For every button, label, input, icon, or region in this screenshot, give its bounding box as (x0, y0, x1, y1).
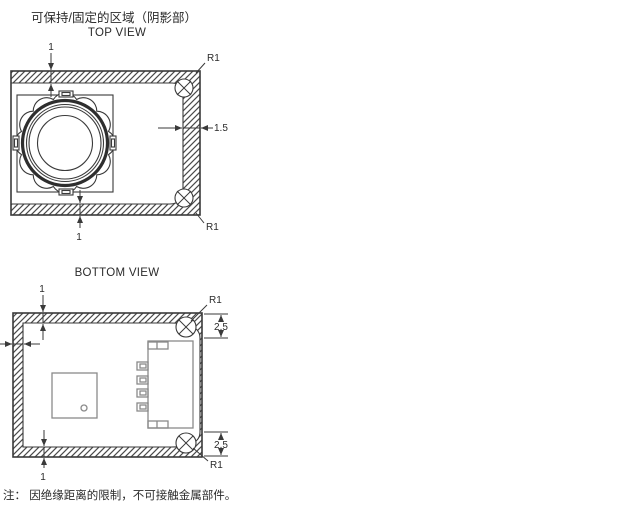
svg-text:1.5: 1.5 (214, 123, 228, 134)
bottom-view-dim-corner-top: 2.5 (204, 314, 228, 338)
lens-module (13, 91, 116, 195)
connector-pin-1 (137, 362, 148, 370)
bottom-view-corner-hole-bottom (176, 433, 196, 453)
top-view: 可保持/固定的区域（阴影部） TOP VIEW (11, 10, 228, 243)
connector-pin-4 (137, 403, 148, 411)
top-view-corner-hole-top (175, 79, 193, 97)
svg-text:1: 1 (39, 284, 45, 295)
svg-text:R1: R1 (207, 53, 220, 64)
ic-chip (52, 373, 97, 418)
svg-text:R1: R1 (209, 295, 222, 306)
bottom-view-dim-corner-bottom: 2.5 (204, 432, 228, 456)
svg-text:1: 1 (48, 42, 54, 53)
bottom-view-title: BOTTOM VIEW (75, 267, 160, 279)
datasheet-mounting-diagram: 可保持/固定的区域（阴影部） TOP VIEW (0, 0, 628, 512)
svg-text:R1: R1 (210, 460, 223, 471)
lens-tab-left (13, 136, 19, 150)
connector-key-top (148, 342, 168, 349)
lens-tab-bottom (59, 189, 73, 195)
lens-tab-right (110, 136, 116, 150)
insulation-note: 注： 因绝缘距离的限制，不可接触金属部件。 (3, 488, 236, 502)
svg-text:1: 1 (40, 472, 46, 483)
bottom-view: BOTTOM VIEW (0, 267, 228, 483)
bottom-view-corner-hole-top (176, 317, 196, 337)
ic-chip-pin1-marker (81, 405, 87, 411)
bottom-view-hatched-region (13, 313, 202, 457)
connector (137, 341, 193, 428)
top-view-dim-bottom-edge: 1 (76, 190, 82, 243)
lens-scallop-ring (15, 93, 115, 193)
top-view-title: TOP VIEW (88, 27, 146, 39)
connector-key-bottom (148, 421, 168, 428)
connector-pin-3 (137, 389, 148, 397)
top-view-r1-top: R1 (196, 53, 220, 73)
bottom-view-dim-top-edge: 1 (39, 284, 45, 340)
top-view-dim-top-edge: 1 (48, 42, 54, 97)
svg-text:R1: R1 (206, 222, 219, 233)
holdable-area-title: 可保持/固定的区域（阴影部） (31, 10, 197, 25)
top-view-r1-bottom: R1 (196, 213, 219, 233)
bottom-view-r1-bottom: R1 (193, 448, 223, 471)
connector-pin-2 (137, 376, 148, 384)
lens-tab-top (59, 91, 73, 97)
connector-body (148, 341, 193, 428)
top-view-corner-hole-bottom (175, 189, 193, 207)
bottom-view-outline (13, 313, 202, 457)
technical-drawing-canvas: 可保持/固定的区域（阴影部） TOP VIEW (0, 0, 628, 512)
svg-text:1: 1 (76, 232, 82, 243)
ic-chip-outline (52, 373, 97, 418)
